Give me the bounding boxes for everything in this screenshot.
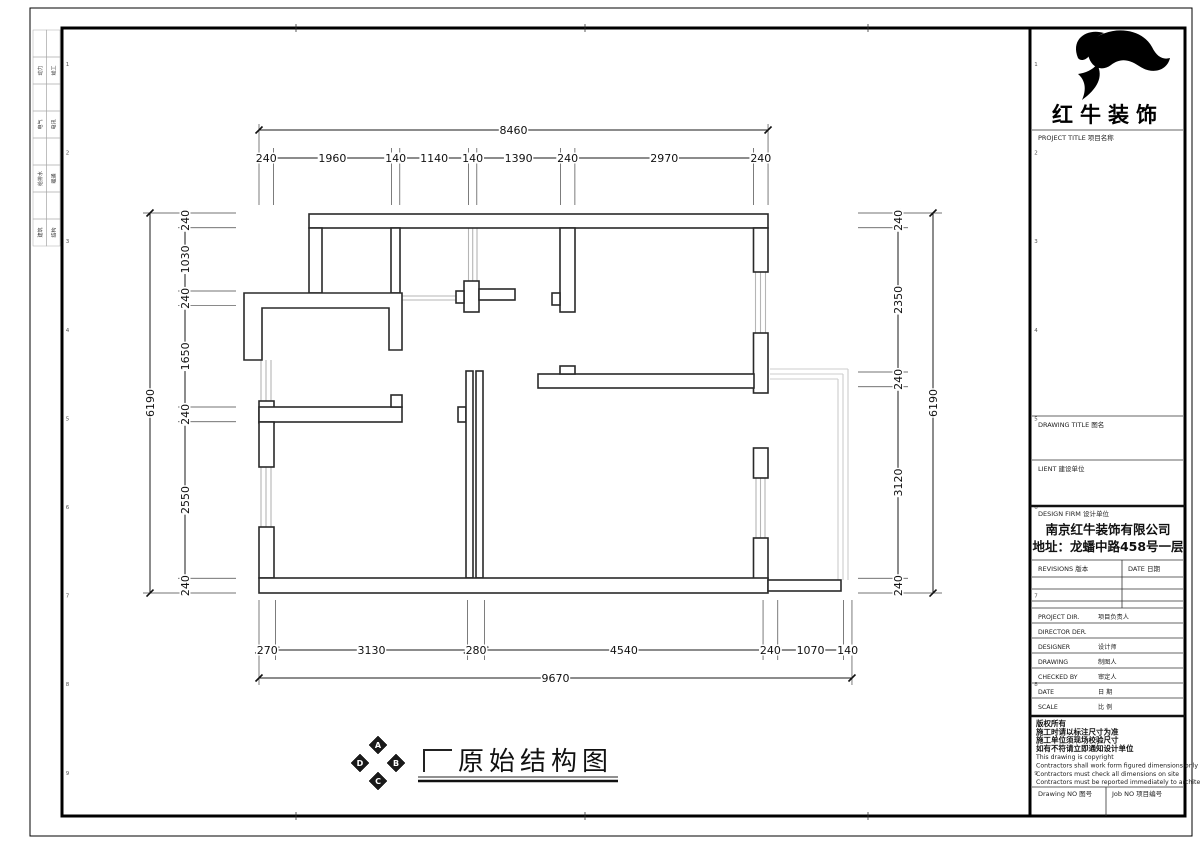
margin-discipline-label: 暖通 [50, 173, 57, 183]
dim-label: 240 [179, 288, 192, 309]
zone-number-left: 9 [66, 771, 70, 777]
zone-number-left: 8 [66, 682, 70, 688]
personnel-role-zh: 制图人 [1098, 658, 1117, 666]
dim-label-group: 240 [892, 209, 905, 232]
dim-label: 240 [750, 152, 771, 165]
personnel-table: PROJECT DIR.项目负责人DIRECTOR DER.DESIGNER设计… [1032, 613, 1183, 711]
personnel-role-en: DATE [1038, 689, 1054, 696]
dim-chain-bottom: 2703130280454024010701409670 [256, 600, 860, 685]
project-title-label: PROJECT TITLE 项目名称 [1038, 133, 1114, 142]
dim-label: 4540 [610, 644, 638, 657]
dim-label: 240 [179, 575, 192, 596]
dim-label: 2350 [892, 286, 905, 314]
dim-label: 270 [257, 644, 278, 657]
stamp-letter: D [357, 759, 364, 768]
stamp-letter: C [375, 777, 381, 786]
floor-plan [244, 214, 848, 593]
brand-name: 红牛装饰 [1052, 102, 1164, 127]
wall-tab4 [458, 407, 466, 422]
dim-label: 240 [892, 369, 905, 390]
personnel-role-zh: 项目负责人 [1098, 613, 1129, 621]
margin-discipline-strip: 动力竣工电气电讯给排水暖通建筑结构 [33, 30, 60, 246]
dim-label-group: 240 [179, 287, 192, 310]
dim-label: 6190 [144, 389, 157, 417]
dim-label: 240 [892, 210, 905, 231]
copyright-line: 如有不符请立即通知设计单位 [1036, 743, 1134, 753]
balcony-outline [770, 369, 848, 580]
margin-label-group: 结构 [50, 227, 57, 237]
copyright-block: 版权所有施工时请以标注尺寸为准施工单位须现场校验尺寸如有不符请立即通知设计单位T… [1035, 718, 1200, 786]
personnel-role-en: DRAWING [1038, 659, 1068, 666]
zone-number-right: 7 [1034, 594, 1038, 600]
wall-280-leaf1 [466, 371, 473, 578]
margin-label-group: 竣工 [50, 65, 57, 75]
zone-number-right: 3 [1034, 239, 1038, 245]
dim-label-group: 2350 [892, 285, 905, 314]
dim-label: 6190 [927, 389, 940, 417]
client-label: LIENT 建设单位 [1038, 464, 1085, 473]
dim-label: 2970 [650, 152, 678, 165]
margin-discipline-label: 给排水 [37, 171, 44, 186]
wall-280-leaf2 [476, 371, 483, 578]
dim-label: 8460 [500, 124, 528, 137]
personnel-role-en: DIRECTOR DER. [1038, 629, 1087, 636]
drawing-title-group: ABCD 原始结构图 [351, 736, 618, 790]
dim-label: 2550 [179, 486, 192, 514]
dim-label: 3130 [358, 644, 386, 657]
dim-chain-right: 240235024031202406190 [858, 209, 942, 597]
drawing-title-text: 原始结构图 [458, 747, 613, 777]
company-name: 南京红牛装饰有限公司 [1045, 522, 1170, 537]
wall-cross-nub [456, 291, 464, 303]
zone-number-left: 5 [66, 416, 70, 422]
personnel-role-zh: 设计师 [1098, 643, 1117, 651]
dim-label: 280 [466, 644, 487, 657]
zone-number-right: 4 [1034, 328, 1038, 334]
margin-label-group: 电气 [37, 119, 44, 129]
dim-label-group: 240 [179, 403, 192, 426]
design-firm-label: DESIGN FIRM 设计单位 [1038, 509, 1109, 518]
margin-label-group: 动力 [37, 65, 44, 75]
dim-label: 140 [837, 644, 858, 657]
wall-right-pier1 [754, 228, 769, 272]
wall-entry-block [244, 293, 402, 360]
date-col-label: DATE 日期 [1128, 565, 1160, 573]
dim-label: 1960 [318, 152, 346, 165]
margin-label-group: 暖通 [50, 173, 57, 183]
dim-label-group: 3120 [892, 468, 905, 497]
dim-label-group: 6190 [927, 388, 940, 417]
margin-cell [33, 138, 47, 165]
personnel-role-en: CHECKED BY [1038, 674, 1078, 681]
margin-discipline-label: 动力 [37, 65, 44, 75]
dim-chain-top: 24019601401140140139024029702408460 [255, 124, 772, 205]
dim-label: 140 [385, 152, 406, 165]
margin-discipline-label: 竣工 [50, 65, 57, 75]
personnel-role-en: PROJECT DIR. [1038, 614, 1079, 621]
cad-canvas: 动力竣工电气电讯给排水暖通建筑结构 112233445566778899 [0, 0, 1200, 844]
zone-number-left: 7 [66, 594, 70, 600]
wall-topleft-vertical [309, 228, 322, 293]
margin-cell [47, 192, 61, 219]
zone-number-left: 2 [66, 151, 70, 157]
wall-bottom [259, 578, 768, 593]
title-block: 红牛装饰 PROJECT TITLE 项目名称 DRAWING TITLE 图名… [1030, 30, 1200, 816]
copyright-line: This drawing is copyright [1035, 754, 1114, 761]
margin-cell [47, 138, 61, 165]
title-bracket-icon [424, 750, 452, 772]
wall-top [309, 214, 768, 228]
wall-midleft [259, 407, 402, 422]
copyright-line: Contractors must check all dimensions on… [1036, 771, 1179, 778]
dim-label: 1030 [179, 245, 192, 273]
dim-label: 1070 [797, 644, 825, 657]
zone-number-right: 1 [1034, 62, 1038, 68]
dim-label: 3120 [892, 469, 905, 497]
margin-discipline-label: 结构 [50, 227, 57, 237]
margin-label-group: 建筑 [37, 227, 44, 237]
personnel-role-zh: 审定人 [1098, 673, 1117, 681]
personnel-role-zh: 比 例 [1098, 703, 1112, 711]
wall-tab2 [560, 366, 575, 374]
dim-label-group: 2550 [179, 485, 192, 514]
walls [244, 214, 841, 593]
company-address: 地址：龙蟠中路458号一层 [1032, 539, 1184, 554]
wall-cross-stem [464, 281, 479, 312]
wall-right-pier2 [754, 333, 769, 393]
revisions-label: REVISIONS 版本 [1038, 564, 1089, 573]
wall-left-pierB [259, 422, 274, 467]
dim-chain-left: 2401030240165024025502406190 [143, 209, 236, 597]
margin-cell [33, 84, 47, 111]
dim-label-group: 240 [892, 368, 905, 391]
wall-tab3 [391, 395, 402, 407]
margin-discipline-label: 电讯 [50, 119, 57, 129]
dim-label: 240 [760, 644, 781, 657]
wall-midright [538, 374, 754, 388]
wall-tab [552, 293, 560, 305]
dim-label: 1140 [420, 152, 448, 165]
stamp-letter: B [393, 759, 399, 768]
dim-label-group: 6190 [144, 388, 157, 417]
zone-numbers: 112233445566778899 [66, 62, 1039, 777]
brand-logo [1076, 30, 1170, 100]
margin-discipline-label: 电气 [37, 119, 44, 129]
dim-label: 240 [557, 152, 578, 165]
wall-cross-arm [479, 289, 515, 300]
drawing-sheet: 动力竣工电气电讯给排水暖通建筑结构 112233445566778899 [0, 0, 1200, 844]
drawing-title-label: DRAWING TITLE 图名 [1038, 420, 1104, 429]
zone-number-right: 2 [1034, 151, 1038, 157]
personnel-role-en: DESIGNER [1038, 644, 1071, 651]
margin-label-group: 给排水 [37, 171, 44, 186]
dim-label-group: 240 [179, 209, 192, 232]
dim-label-group: 1650 [179, 342, 192, 371]
dim-label: 1390 [505, 152, 533, 165]
dim-label-group: 240 [892, 574, 905, 597]
wall-kitchen-partition [391, 228, 400, 293]
personnel-role-zh: 日 期 [1098, 688, 1112, 696]
margin-cell [47, 30, 61, 57]
dim-label: 240 [179, 210, 192, 231]
job-no-label: Job NO 项目编号 [1111, 789, 1163, 798]
wall-left-pierC [259, 527, 274, 578]
zone-number-left: 4 [66, 328, 70, 334]
personnel-role-en: SCALE [1038, 704, 1058, 711]
wall-right-pier3 [754, 448, 769, 478]
wall-right-pier4 [754, 538, 769, 579]
dim-label: 1650 [179, 342, 192, 370]
drawing-no-label: Drawing NO 图号 [1038, 790, 1093, 798]
dim-label-group: 240 [179, 574, 192, 597]
margin-label-group: 电讯 [50, 119, 57, 129]
dim-label: 240 [892, 575, 905, 596]
margin-cell [33, 30, 47, 57]
dim-label: 240 [256, 152, 277, 165]
stamp-letter: A [375, 741, 382, 750]
dim-label: 140 [462, 152, 483, 165]
dim-label: 240 [179, 404, 192, 425]
dim-label: 9670 [541, 672, 569, 685]
dim-label-group: 1030 [179, 245, 192, 274]
zone-number-left: 1 [66, 62, 70, 68]
zone-number-left: 6 [66, 505, 70, 511]
zone-number-left: 3 [66, 239, 70, 245]
wall-hall-bedroom [560, 228, 575, 312]
wall-balcony-bottom [768, 580, 841, 591]
margin-discipline-label: 建筑 [37, 227, 44, 237]
margin-cell [47, 84, 61, 111]
margin-cell [33, 192, 47, 219]
copyright-line: Contractors shall work form figured dime… [1036, 763, 1198, 770]
copyright-line: Contractors must be reported immediately… [1036, 779, 1200, 786]
revision-stamp: ABCD [351, 736, 405, 790]
